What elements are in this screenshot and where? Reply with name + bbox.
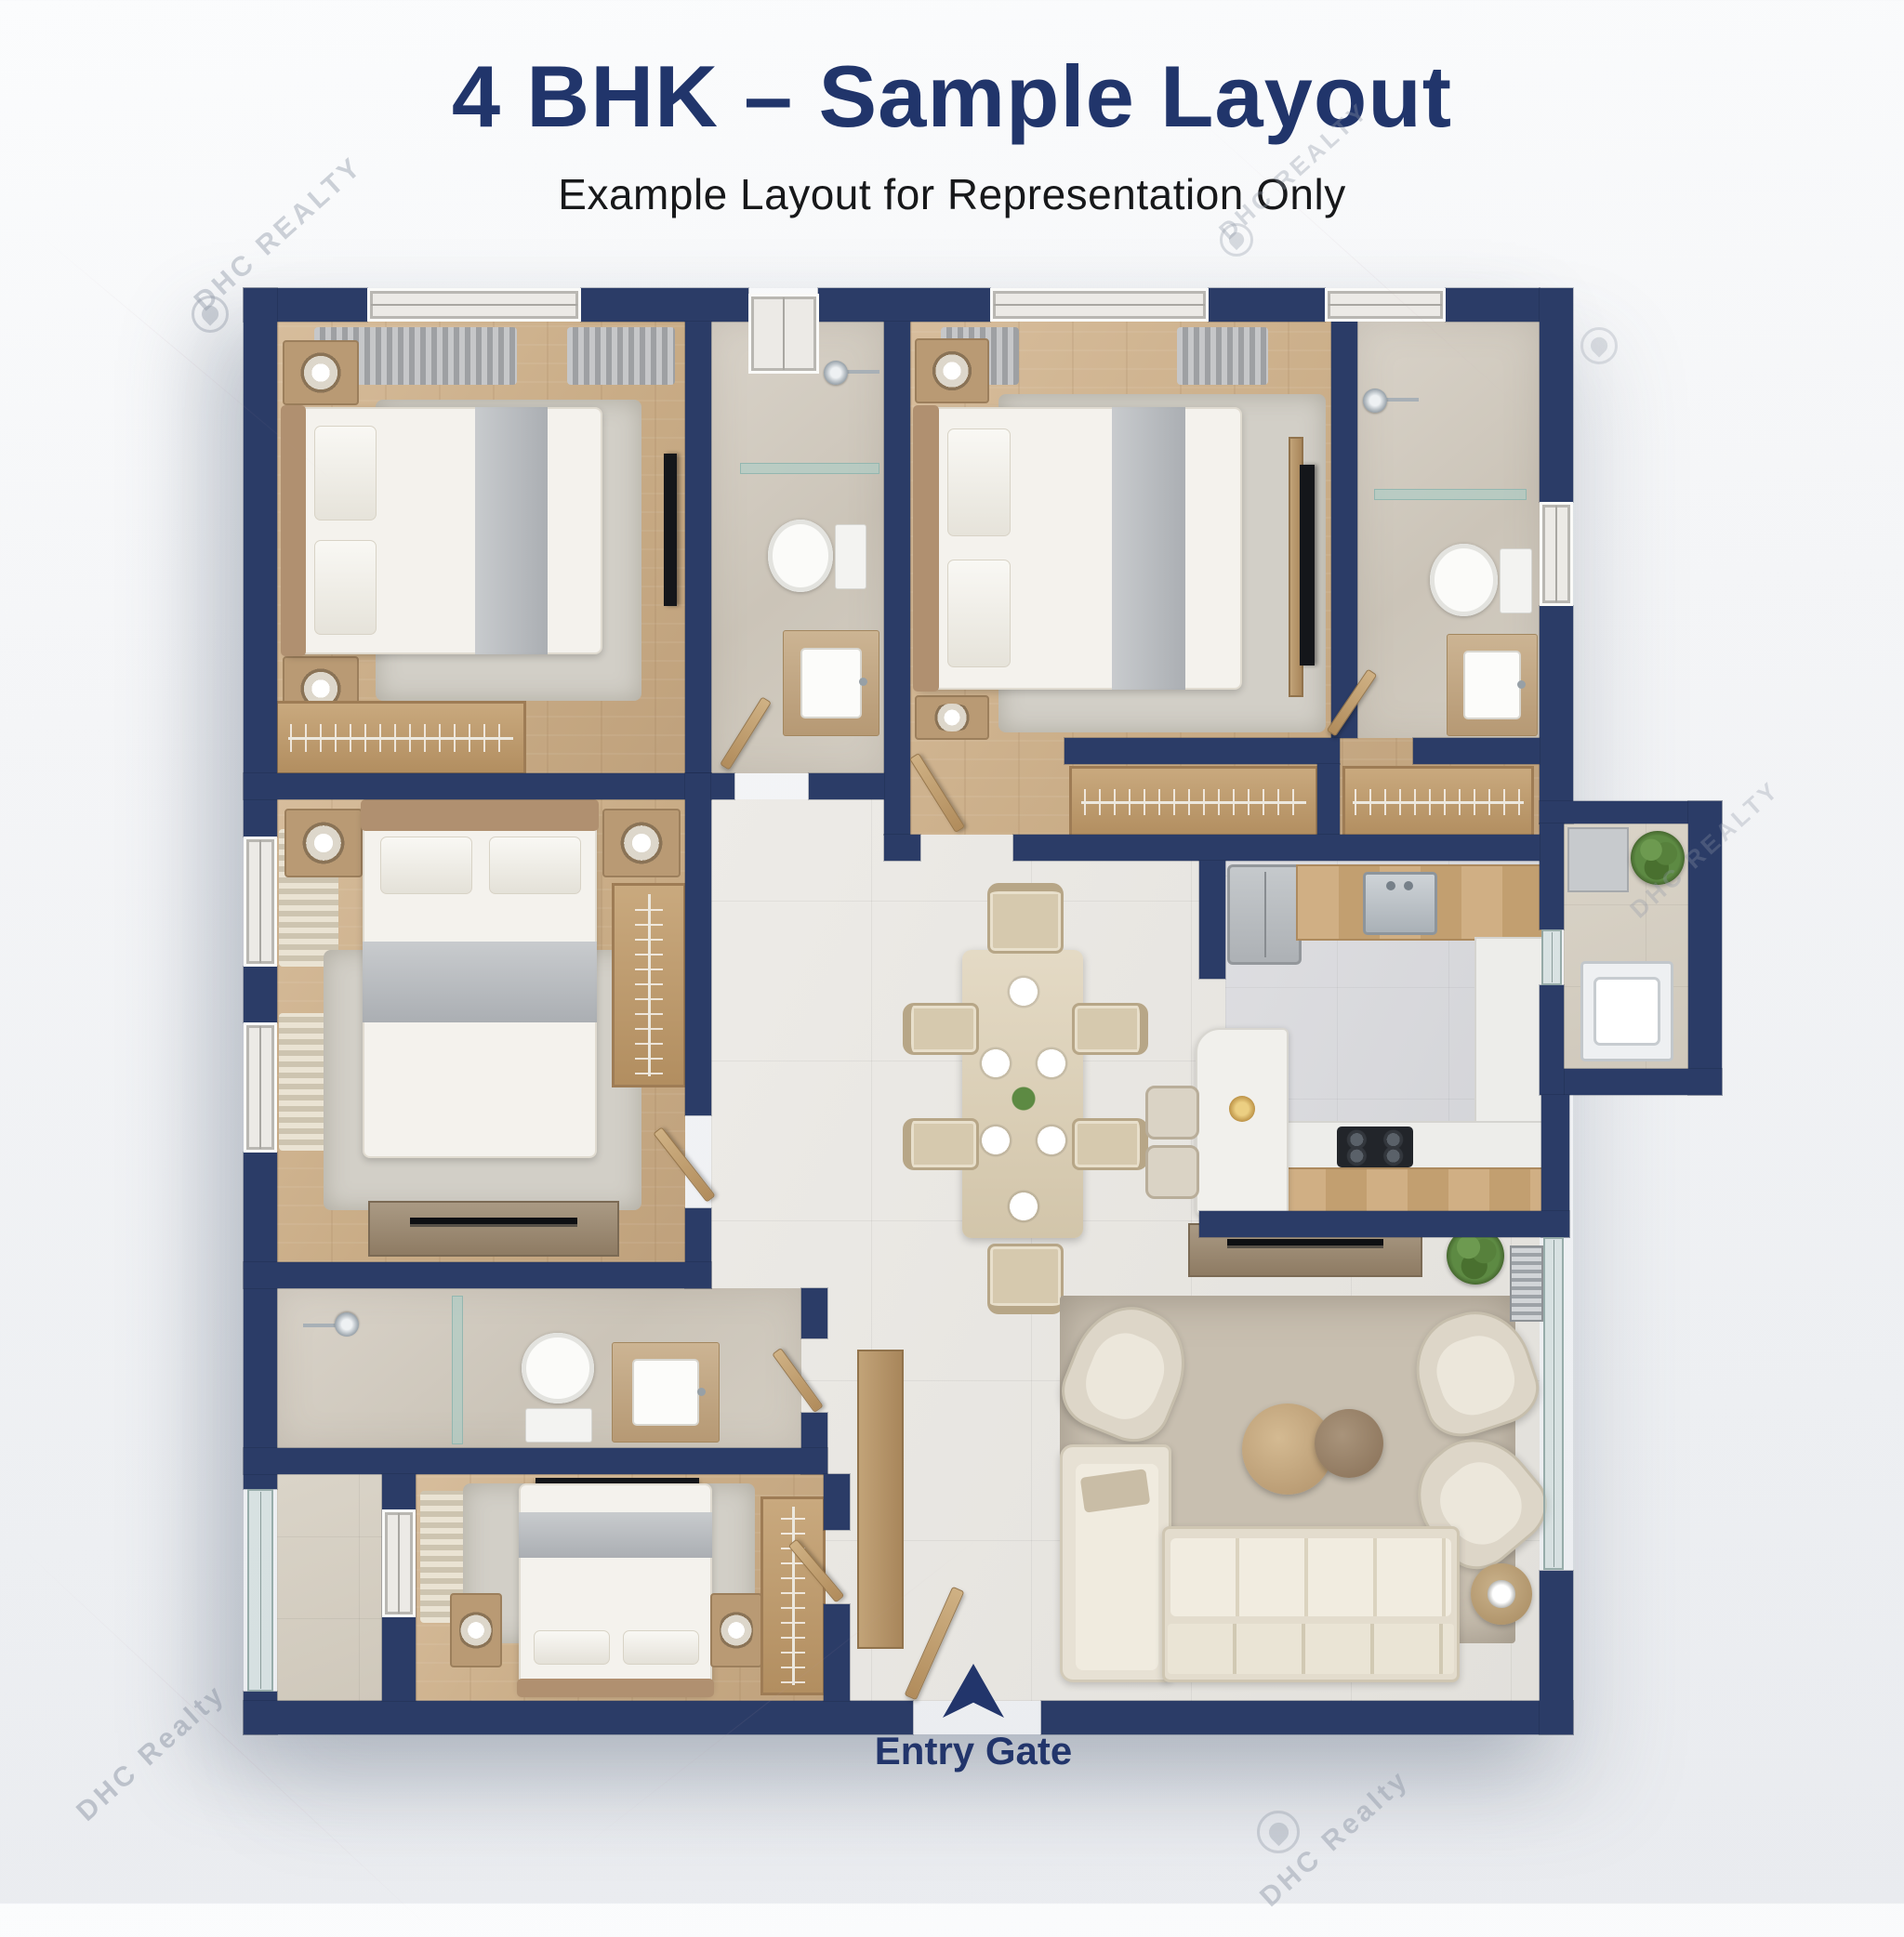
dining-chair bbox=[1072, 1118, 1148, 1170]
fsplit bbox=[1264, 872, 1266, 957]
wardrobe bbox=[612, 883, 686, 1087]
wall bbox=[801, 1288, 827, 1338]
toilet bbox=[768, 517, 866, 595]
kitchen-counter bbox=[1283, 1167, 1543, 1216]
open-closet bbox=[1069, 766, 1318, 838]
tvline bbox=[1227, 1239, 1384, 1245]
window bbox=[382, 1509, 416, 1617]
nightstand bbox=[915, 338, 989, 403]
kitchen-sink bbox=[1363, 872, 1437, 935]
pil bbox=[947, 560, 1011, 667]
entry-gate-label: Entry Gate bbox=[875, 1729, 1072, 1773]
lamp bbox=[459, 1606, 492, 1654]
wall bbox=[1413, 738, 1540, 764]
tank bbox=[835, 524, 866, 588]
poster-background: { "header": { "title": "4 BHK – Sample L… bbox=[0, 0, 1904, 1904]
shower-glass bbox=[1374, 489, 1527, 500]
tank bbox=[1500, 548, 1532, 613]
bowl bbox=[1430, 544, 1498, 615]
shead bbox=[824, 361, 848, 385]
nightstand bbox=[284, 809, 363, 877]
dhc-logo-icon bbox=[1580, 327, 1618, 364]
shower-glass bbox=[452, 1296, 463, 1444]
nightstand bbox=[450, 1593, 502, 1667]
room-balcony bbox=[277, 1474, 382, 1701]
master-bed bbox=[917, 407, 1242, 690]
wash-basin bbox=[1447, 634, 1538, 736]
wall bbox=[1199, 861, 1225, 979]
kitchen-island bbox=[1196, 1028, 1289, 1216]
wall bbox=[1013, 835, 1540, 861]
wall bbox=[1064, 738, 1340, 764]
radiator bbox=[1510, 1245, 1543, 1322]
rail-h bbox=[1081, 801, 1305, 804]
wall bbox=[244, 1262, 711, 1288]
toilet bbox=[517, 1333, 599, 1443]
shead bbox=[335, 1312, 359, 1337]
wall bbox=[685, 773, 711, 1115]
shower-head bbox=[824, 361, 879, 383]
lamp bbox=[720, 1606, 752, 1654]
nightstand bbox=[602, 809, 681, 877]
wall bbox=[809, 773, 884, 799]
cush bbox=[1076, 1324, 1174, 1428]
wall bbox=[1540, 985, 1564, 1095]
head-l bbox=[281, 405, 306, 656]
wall bbox=[884, 835, 920, 861]
arm bbox=[845, 370, 879, 374]
lamp bbox=[616, 821, 667, 865]
wardrobe bbox=[275, 701, 526, 775]
arm bbox=[303, 1324, 337, 1327]
dining-chair bbox=[987, 883, 1064, 954]
basin bbox=[632, 1359, 700, 1426]
toilet bbox=[1430, 541, 1532, 619]
head-b bbox=[517, 1679, 714, 1697]
throw-h bbox=[363, 942, 597, 1022]
sofa bbox=[1162, 1526, 1460, 1682]
cooktop bbox=[1337, 1127, 1413, 1167]
wall bbox=[1554, 1069, 1722, 1095]
bowl bbox=[768, 520, 833, 591]
wall bbox=[244, 1701, 913, 1734]
wash-basin bbox=[783, 630, 879, 736]
throw-v bbox=[1112, 407, 1186, 690]
wall bbox=[824, 1604, 850, 1701]
dining-chair bbox=[1072, 1003, 1148, 1055]
pilh bbox=[489, 837, 581, 894]
nightstand bbox=[710, 1593, 762, 1667]
wall bbox=[244, 1448, 827, 1474]
coffee-table bbox=[1315, 1409, 1383, 1478]
tap bbox=[859, 678, 867, 686]
dining-chair bbox=[987, 1244, 1064, 1314]
wall bbox=[884, 322, 910, 835]
glass-panel bbox=[1543, 1237, 1564, 1570]
wall bbox=[711, 773, 734, 799]
dhc-logo-icon bbox=[1257, 1811, 1300, 1853]
gold bbox=[1229, 1096, 1255, 1122]
window bbox=[244, 837, 277, 967]
side-table bbox=[1471, 1563, 1532, 1625]
lamp bbox=[928, 350, 976, 392]
bar-stool bbox=[1145, 1145, 1199, 1199]
throw-hb bbox=[519, 1512, 712, 1558]
open-closet bbox=[1342, 766, 1534, 838]
tv-panel bbox=[664, 454, 677, 606]
rail-h bbox=[288, 737, 514, 740]
shower-glass bbox=[740, 463, 879, 474]
wall bbox=[1540, 1571, 1573, 1734]
wall bbox=[1317, 764, 1340, 835]
double-bed bbox=[363, 803, 597, 1158]
dining-chair bbox=[903, 1003, 979, 1055]
bowlw bbox=[1487, 1580, 1514, 1607]
glass-panel bbox=[247, 1489, 273, 1692]
basin bbox=[1463, 651, 1520, 718]
basin bbox=[800, 648, 861, 718]
pil bbox=[314, 540, 376, 635]
wall bbox=[1540, 606, 1573, 824]
pilh bbox=[623, 1630, 699, 1666]
rail-v bbox=[792, 1507, 795, 1684]
window bbox=[748, 294, 819, 374]
window bbox=[244, 1022, 277, 1153]
double-bed bbox=[519, 1483, 712, 1693]
cush bbox=[1429, 1328, 1524, 1424]
throw-v bbox=[475, 407, 548, 654]
head-l bbox=[913, 405, 939, 692]
window bbox=[1540, 502, 1573, 606]
wall bbox=[244, 773, 711, 799]
double-bed bbox=[284, 407, 602, 654]
drum bbox=[1593, 977, 1659, 1045]
utility-cabinet bbox=[1567, 827, 1629, 892]
wall bbox=[824, 1474, 850, 1530]
tapdot bbox=[1386, 881, 1395, 890]
pilh bbox=[380, 837, 472, 894]
wall bbox=[1540, 288, 1573, 502]
wall bbox=[1199, 1211, 1569, 1237]
tap bbox=[1517, 680, 1526, 689]
floor-plan bbox=[0, 0, 1904, 1904]
shower-head bbox=[303, 1314, 359, 1337]
wall bbox=[581, 288, 748, 322]
rail-h bbox=[1353, 801, 1524, 804]
wall bbox=[1041, 1701, 1573, 1734]
fridge bbox=[1227, 864, 1302, 965]
wall bbox=[1209, 288, 1325, 322]
tapdot bbox=[1404, 881, 1413, 890]
dining-table bbox=[962, 950, 1083, 1238]
rail-v bbox=[648, 894, 651, 1077]
wall bbox=[244, 967, 277, 1022]
kitchen-counter bbox=[1283, 1121, 1543, 1173]
shower-head bbox=[1363, 389, 1419, 411]
foyer-console bbox=[857, 1350, 904, 1649]
wall bbox=[1331, 322, 1357, 738]
wall bbox=[685, 322, 711, 773]
glass-panel bbox=[1541, 929, 1562, 985]
washing-machine bbox=[1580, 961, 1673, 1061]
lamp bbox=[298, 821, 349, 865]
dining-chair bbox=[903, 1118, 979, 1170]
lamp bbox=[296, 352, 345, 394]
head-t bbox=[361, 799, 599, 831]
curtain bbox=[1177, 327, 1268, 385]
tv-console bbox=[368, 1201, 619, 1257]
wall bbox=[1540, 824, 1564, 929]
tap bbox=[697, 1388, 706, 1396]
shead bbox=[1363, 389, 1387, 413]
pilh bbox=[534, 1630, 610, 1666]
curtain bbox=[567, 327, 675, 385]
window bbox=[1325, 288, 1446, 322]
bowl-t bbox=[522, 1333, 593, 1403]
sofa bbox=[1060, 1444, 1171, 1682]
nightstand bbox=[283, 340, 359, 405]
tank-b bbox=[525, 1408, 592, 1443]
bar-stool bbox=[1145, 1086, 1199, 1140]
lamp bbox=[928, 704, 976, 731]
arm bbox=[1384, 398, 1419, 402]
tv-panel bbox=[1300, 465, 1315, 665]
tvline bbox=[410, 1218, 578, 1224]
wall bbox=[244, 288, 277, 837]
window bbox=[990, 288, 1209, 322]
wall bbox=[818, 288, 990, 322]
window bbox=[367, 288, 581, 322]
wall bbox=[244, 1153, 277, 1489]
pil bbox=[947, 428, 1011, 536]
wall bbox=[1446, 288, 1540, 322]
wash-basin bbox=[612, 1342, 720, 1443]
nightstand bbox=[915, 695, 989, 740]
